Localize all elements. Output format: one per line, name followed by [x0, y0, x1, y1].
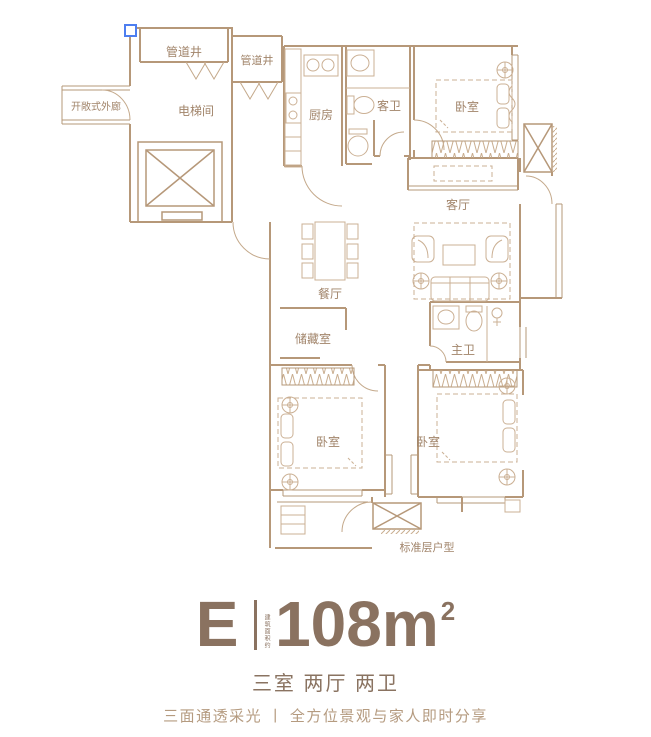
room-label-open-corridor: 开敞式外廊 [71, 100, 121, 113]
room-label-dining-room: 餐厅 [318, 286, 342, 301]
selection-handle[interactable] [124, 24, 137, 37]
dining-furniture [302, 222, 358, 280]
room-label-bedroom-sw: 卧室 [316, 434, 340, 449]
bedroom-sw-furniture [278, 368, 362, 490]
caption-block: E 建筑面积约 108m 2 三室 两厅 两卫 三面通透采光 丨 全方位景观与家… [0, 596, 651, 726]
area-note-vertical: 建筑面积约 [262, 614, 269, 649]
bedroom-se-furniture [433, 370, 517, 485]
room-label-elevator-hall: 电梯间 [178, 104, 214, 118]
room-label-pipe-shaft-1: 管道井 [166, 44, 202, 59]
living-room-furniture [412, 223, 510, 301]
duct-shaft-south [373, 503, 421, 534]
unit-letter: E [196, 596, 240, 652]
windows [62, 55, 562, 503]
bedroom-ne-furniture [432, 62, 518, 181]
unit-title-row: E 建筑面积约 108m 2 [0, 596, 651, 652]
room-label-bedroom-ne: 卧室 [455, 99, 479, 114]
area-superscript: 2 [441, 598, 455, 624]
floor-plan-page: 管道井 管道井 开敞式外廊 电梯间 厨房 客卫 卧室 客厅 餐厅 储藏室 主卫 … [0, 0, 651, 737]
duct-shaft-east [524, 124, 557, 172]
title-divider [254, 600, 257, 650]
plan-footnote: 标准层户型 [400, 540, 455, 554]
room-label-kitchen: 厨房 [309, 107, 333, 122]
marketing-tagline: 三面通透采光 丨 全方位景观与家人即时分享 [0, 705, 651, 726]
room-label-bedroom-se: 卧室 [416, 434, 440, 449]
elevator-shaft [138, 142, 222, 222]
room-label-living-room: 客厅 [446, 197, 470, 212]
area-value: 108m [275, 596, 439, 652]
layout-summary: 三室 两厅 两卫 [0, 667, 651, 696]
room-label-guest-bath: 客卫 [377, 98, 401, 113]
floor-plan-drawing: 管道井 管道井 开敞式外廊 电梯间 厨房 客卫 卧室 客厅 餐厅 储藏室 主卫 … [0, 0, 651, 570]
room-label-storage: 储藏室 [295, 331, 331, 346]
room-label-master-bath: 主卫 [451, 343, 475, 357]
room-label-pipe-shaft-2: 管道井 [241, 53, 274, 67]
